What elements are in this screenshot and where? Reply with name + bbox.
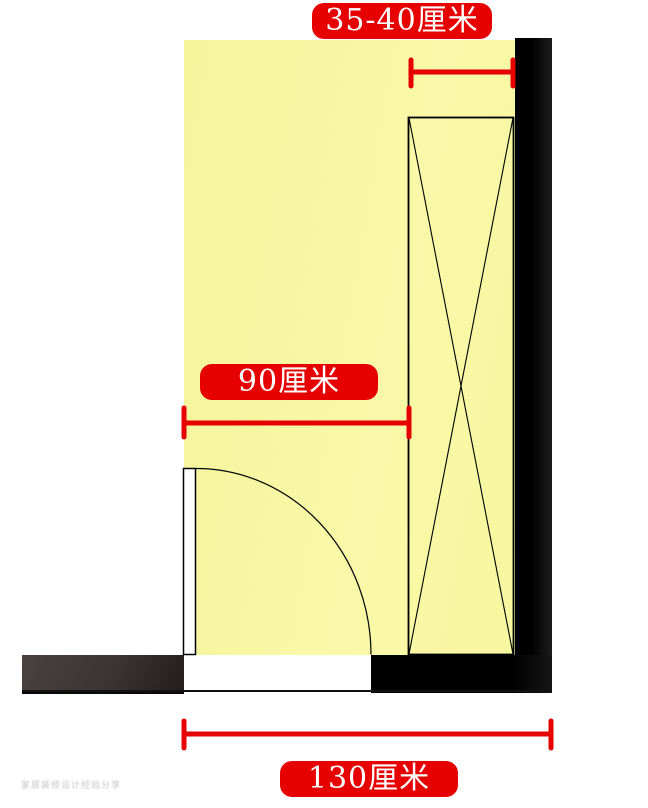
dimension-label-total-width: 130厘米 bbox=[280, 761, 458, 797]
wardrobe bbox=[409, 118, 514, 655]
door-swing-arc bbox=[196, 468, 372, 654]
dimension-line-door-to-wardrobe bbox=[184, 408, 409, 437]
dimension-line-wardrobe-depth bbox=[411, 60, 513, 86]
dimension-label-door-to-wardrobe: 90厘米 bbox=[200, 364, 378, 400]
door bbox=[184, 468, 372, 654]
plan-linework bbox=[0, 0, 648, 808]
dimension-line-total-width bbox=[184, 721, 551, 748]
floor-plan-canvas: 35-40厘米 90厘米 130厘米 家居装修设计经验分享 bbox=[0, 0, 648, 808]
dimension-label-wardrobe-depth: 35-40厘米 bbox=[312, 3, 492, 39]
watermark-text: 家居装修设计经验分享 bbox=[21, 778, 121, 791]
door-leaf bbox=[184, 469, 196, 655]
